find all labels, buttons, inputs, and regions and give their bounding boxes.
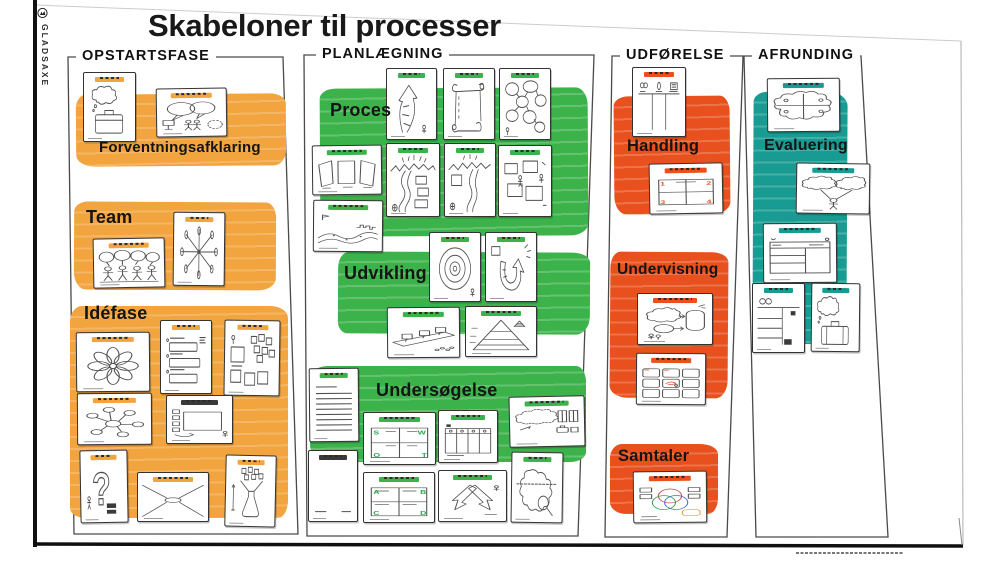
template-card-cloud-with-notes xyxy=(508,395,585,448)
poster-title: Skabeloner til processer xyxy=(148,8,501,44)
card-title-mark xyxy=(455,73,484,78)
template-card-funnel-flask xyxy=(224,454,276,527)
card-title-mark xyxy=(453,475,492,480)
svg-text:?: ? xyxy=(92,465,111,516)
template-card-three-columns xyxy=(632,67,686,137)
card-title-mark xyxy=(93,398,136,403)
svg-text:C: C xyxy=(373,511,379,517)
section-label-udvikling: Udvikling xyxy=(344,263,427,284)
template-card-curved-arrow xyxy=(386,68,437,140)
template-card-column-table xyxy=(438,410,498,463)
template-card-swot-grid: SWOT xyxy=(363,412,436,465)
card-title-mark xyxy=(525,401,568,407)
card-title-mark xyxy=(185,217,214,222)
card-title-mark xyxy=(783,83,825,88)
card-title-mark xyxy=(497,237,526,242)
card-title-mark xyxy=(181,400,219,405)
template-card-sticky-notes xyxy=(223,320,280,397)
svg-text:W: W xyxy=(418,429,426,436)
template-card-numbered-form xyxy=(160,320,212,394)
template-card-shelf-boxes xyxy=(387,307,460,359)
template-card-flower-petals xyxy=(76,332,151,393)
card-title-mark xyxy=(822,288,849,293)
card-title-mark xyxy=(398,148,428,153)
column-label-afrunding: AFRUNDING xyxy=(752,47,860,64)
template-card-nine-grid-storyboard xyxy=(636,353,706,405)
card-title-mark xyxy=(92,337,134,342)
card-title-mark xyxy=(644,72,674,77)
svg-text:4: 4 xyxy=(707,198,712,205)
template-card-concentric-circles xyxy=(429,232,481,302)
card-title-mark xyxy=(510,150,540,155)
card-title-mark xyxy=(237,460,265,466)
svg-text:2: 2 xyxy=(706,180,711,187)
template-card-perspective-lines xyxy=(137,472,209,522)
card-title-mark xyxy=(171,93,211,99)
gladsaxe-logo-text: GLADSAXE xyxy=(40,24,50,87)
card-title-mark xyxy=(379,477,420,482)
template-card-iceberg-magnifier xyxy=(511,452,564,524)
card-title-mark xyxy=(153,477,194,482)
card-title-mark xyxy=(379,417,421,422)
card-title-mark xyxy=(511,73,540,78)
card-title-mark xyxy=(237,325,268,330)
template-card-u-arrow xyxy=(485,232,537,302)
template-card-cloud-chain xyxy=(499,68,551,140)
card-title-mark xyxy=(481,311,522,316)
template-card-lined-page xyxy=(309,368,360,442)
template-card-river-with-boxes xyxy=(386,143,440,217)
section-label-samtaler: Samtaler xyxy=(618,447,689,466)
card-title-mark xyxy=(456,148,485,153)
process-templates-poster: GLADSAXE Skabeloner til processer OPSTAR… xyxy=(0,0,999,562)
column-label-opstartsfase: OPSTARTSFASE xyxy=(76,48,216,65)
section-label-undersoegelse: Undersøgelse xyxy=(376,380,497,401)
card-title-mark xyxy=(108,243,149,249)
card-title-mark xyxy=(398,73,426,78)
template-card-two-clouds-person xyxy=(796,162,871,214)
card-title-mark xyxy=(451,415,484,420)
template-card-people-speech-bubbles xyxy=(93,237,166,288)
template-card-venn-diagram xyxy=(633,471,708,524)
svg-text:O: O xyxy=(373,452,380,459)
template-card-split-table xyxy=(763,223,837,284)
column-label-planlaegning: PLANLÆGNING xyxy=(316,46,449,63)
template-card-boxes-figures xyxy=(498,145,552,217)
svg-text:T: T xyxy=(422,452,428,459)
card-title-mark xyxy=(90,455,116,460)
template-card-blank-page xyxy=(308,450,358,522)
card-title-mark xyxy=(328,205,368,210)
template-card-landscape-path xyxy=(313,200,383,253)
template-card-cloud-quadrant xyxy=(767,78,840,133)
card-title-mark xyxy=(764,288,793,293)
card-title-mark xyxy=(523,457,552,462)
section-label-handling: Handling xyxy=(627,137,699,156)
template-card-two-column-list xyxy=(752,283,805,353)
svg-text:B: B xyxy=(420,490,426,496)
section-label-idefase: Idéfase xyxy=(84,303,147,324)
section-label-undervisning: Undervisning xyxy=(617,261,718,279)
card-title-mark xyxy=(812,168,854,174)
template-card-abcd-grid: ABCD xyxy=(363,472,435,523)
section-label-team: Team xyxy=(86,207,133,228)
card-title-mark xyxy=(319,455,346,460)
template-card-thought-suitcase xyxy=(83,72,136,142)
template-card-speech-bubbles-people xyxy=(156,88,228,138)
card-title-mark xyxy=(779,228,821,233)
template-card-board-with-notes xyxy=(166,395,233,444)
template-card-pyramid xyxy=(465,306,537,357)
card-title-mark xyxy=(653,298,696,303)
gladsaxe-crest-icon xyxy=(37,7,48,19)
template-card-scroll xyxy=(443,68,495,140)
template-card-clouds-flow xyxy=(637,293,713,345)
card-title-mark xyxy=(95,77,124,82)
card-title-mark xyxy=(320,373,347,378)
svg-text:S: S xyxy=(373,429,379,436)
svg-text:1: 1 xyxy=(660,181,665,188)
template-card-arrow-shapes xyxy=(438,470,507,522)
template-card-numbered-quadrants: 1234 xyxy=(649,162,724,214)
column-label-udfoerelse: UDFØRELSE xyxy=(620,47,730,64)
template-card-three-panels xyxy=(312,145,383,196)
section-label-forventningsafklaring: Forventningsafklaring xyxy=(99,139,261,156)
template-card-question-mark: ? xyxy=(79,450,128,524)
card-title-mark xyxy=(665,168,707,174)
section-label-proces: Proces xyxy=(330,100,391,121)
template-card-radial-spokes xyxy=(173,212,226,287)
template-card-mind-map xyxy=(77,393,152,446)
card-title-mark xyxy=(327,150,367,155)
svg-text:A: A xyxy=(373,490,379,496)
card-title-mark xyxy=(403,312,445,317)
card-title-mark xyxy=(441,237,470,242)
card-title-mark xyxy=(651,358,691,363)
section-label-evaluering: Evaluering xyxy=(764,137,848,155)
template-card-river-path xyxy=(444,143,496,217)
card-title-mark xyxy=(649,476,691,481)
template-card-suitcase-thought xyxy=(811,283,861,353)
svg-text:3: 3 xyxy=(660,199,665,206)
svg-text:D: D xyxy=(420,511,426,517)
card-title-mark xyxy=(172,325,201,330)
